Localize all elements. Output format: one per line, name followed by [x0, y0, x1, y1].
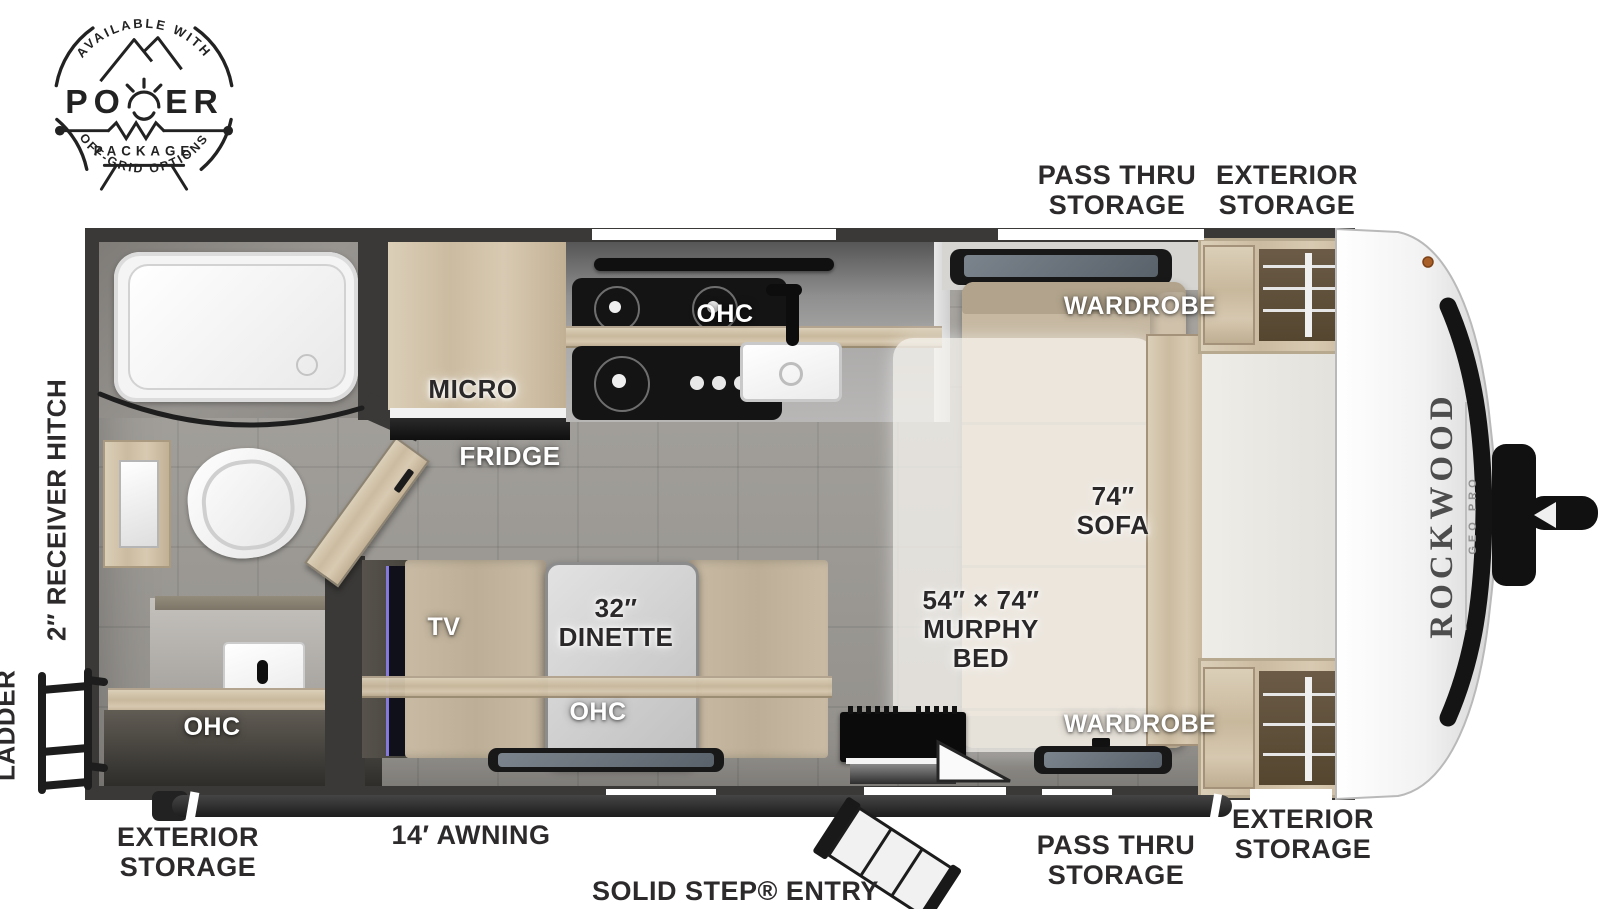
- fridge: [390, 418, 570, 440]
- dinette-bench-right: [688, 560, 828, 758]
- knob: [712, 376, 726, 390]
- window-crank: [1092, 738, 1110, 747]
- shelf-divider: [1305, 253, 1312, 337]
- window-slot-top-kitchen: [592, 229, 836, 240]
- dinette-bench-left: [405, 560, 546, 758]
- label-ohc-bath: OHC: [172, 713, 252, 741]
- label-sofa: 74″ SOFA: [1067, 482, 1159, 540]
- cabinet-shelf-interior: [1259, 249, 1363, 341]
- sofa-window: [950, 249, 1172, 285]
- hitch-icon: [1492, 444, 1598, 586]
- murphy-bed: [893, 338, 1155, 752]
- label-ladder: LADDER: [0, 646, 28, 804]
- kitchen-sink: [740, 342, 842, 402]
- badge-power-left: PO: [65, 84, 126, 121]
- dinette-window-glass: [498, 753, 714, 767]
- bedroom-window: [1034, 746, 1172, 774]
- dinette-window: [488, 748, 724, 772]
- label-exterior-storage-bottom-left: EXTERIOR STORAGE: [96, 822, 280, 882]
- bathtub: [114, 252, 358, 402]
- fridge-top-trim: [390, 408, 566, 418]
- label-receiver-hitch: 2″ RECEIVER HITCH: [30, 342, 84, 678]
- cabinet-shelf-interior: [1259, 671, 1363, 785]
- label-pass-thru-storage-top: PASS THRU STORAGE: [1013, 160, 1221, 220]
- bath-shelf: [155, 596, 325, 610]
- label-ohc-kitchen: OHC: [685, 300, 765, 328]
- badge-power-word: PO ER: [65, 79, 224, 121]
- toilet-seat: [198, 455, 299, 554]
- label-tv: TV: [414, 613, 474, 641]
- ohc-shelf-dinette: [362, 676, 832, 698]
- marker-light: [1423, 257, 1433, 267]
- label-wardrobe-top: WARDROBE: [1055, 292, 1225, 320]
- front-cap-stripe: [1448, 306, 1484, 718]
- window-slot-top-sofa: [998, 229, 1204, 240]
- furnace-fins: [848, 706, 902, 714]
- brand-make: ROCKWOOD: [1424, 391, 1460, 638]
- shelf-divider: [1305, 677, 1312, 781]
- label-ohc-dinette: OHC: [558, 698, 638, 726]
- label-pass-thru-storage-bottom: PASS THRU STORAGE: [1012, 830, 1220, 890]
- brand-model: GEO PRO: [1467, 475, 1479, 554]
- label-fridge: FRIDGE: [450, 442, 570, 471]
- faucet-spout: [766, 284, 802, 296]
- tub-drain: [296, 354, 318, 376]
- mirror: [119, 460, 159, 548]
- floorplan-canvas: AVAILABLE WITH PO ER PACKAGE: [0, 0, 1600, 909]
- faucet: [786, 288, 799, 346]
- sink-drain: [779, 362, 803, 386]
- label-murphy-bed: 54″ × 74″ MURPHY BED: [896, 586, 1066, 673]
- label-awning: 14′ AWNING: [378, 820, 564, 850]
- sun-icon: [127, 79, 161, 119]
- bath-sink: [223, 642, 305, 694]
- wall-bath-dinette: [325, 556, 365, 786]
- furnace-front: [850, 764, 956, 784]
- bath-faucet: [257, 660, 268, 684]
- power-package-badge: AVAILABLE WITH PO ER PACKAGE: [45, 2, 243, 200]
- furnace-fins: [916, 706, 960, 714]
- badge-power-right: ER: [165, 84, 224, 121]
- knob: [690, 376, 704, 390]
- range-hood: [594, 258, 834, 271]
- label-wardrobe-bottom: WARDROBE: [1055, 710, 1225, 738]
- burner: [594, 356, 650, 412]
- sofa-window-glass: [964, 255, 1158, 277]
- label-entry: SOLID STEP® ENTRY: [592, 876, 854, 906]
- label-micro: MICRO: [418, 375, 528, 404]
- label-exterior-storage-bottom-right: EXTERIOR STORAGE: [1210, 804, 1396, 864]
- label-dinette: 32″ DINETTE: [553, 594, 679, 652]
- label-exterior-storage-top: EXTERIOR STORAGE: [1196, 160, 1378, 220]
- furnace: [840, 712, 966, 762]
- vanity-mirror-cabinet: [103, 440, 171, 568]
- mountain-icon: [100, 38, 181, 82]
- window-slot-bottom-front: [1250, 789, 1332, 800]
- awning-tube: [172, 795, 1232, 817]
- bedroom-window-glass: [1044, 752, 1162, 768]
